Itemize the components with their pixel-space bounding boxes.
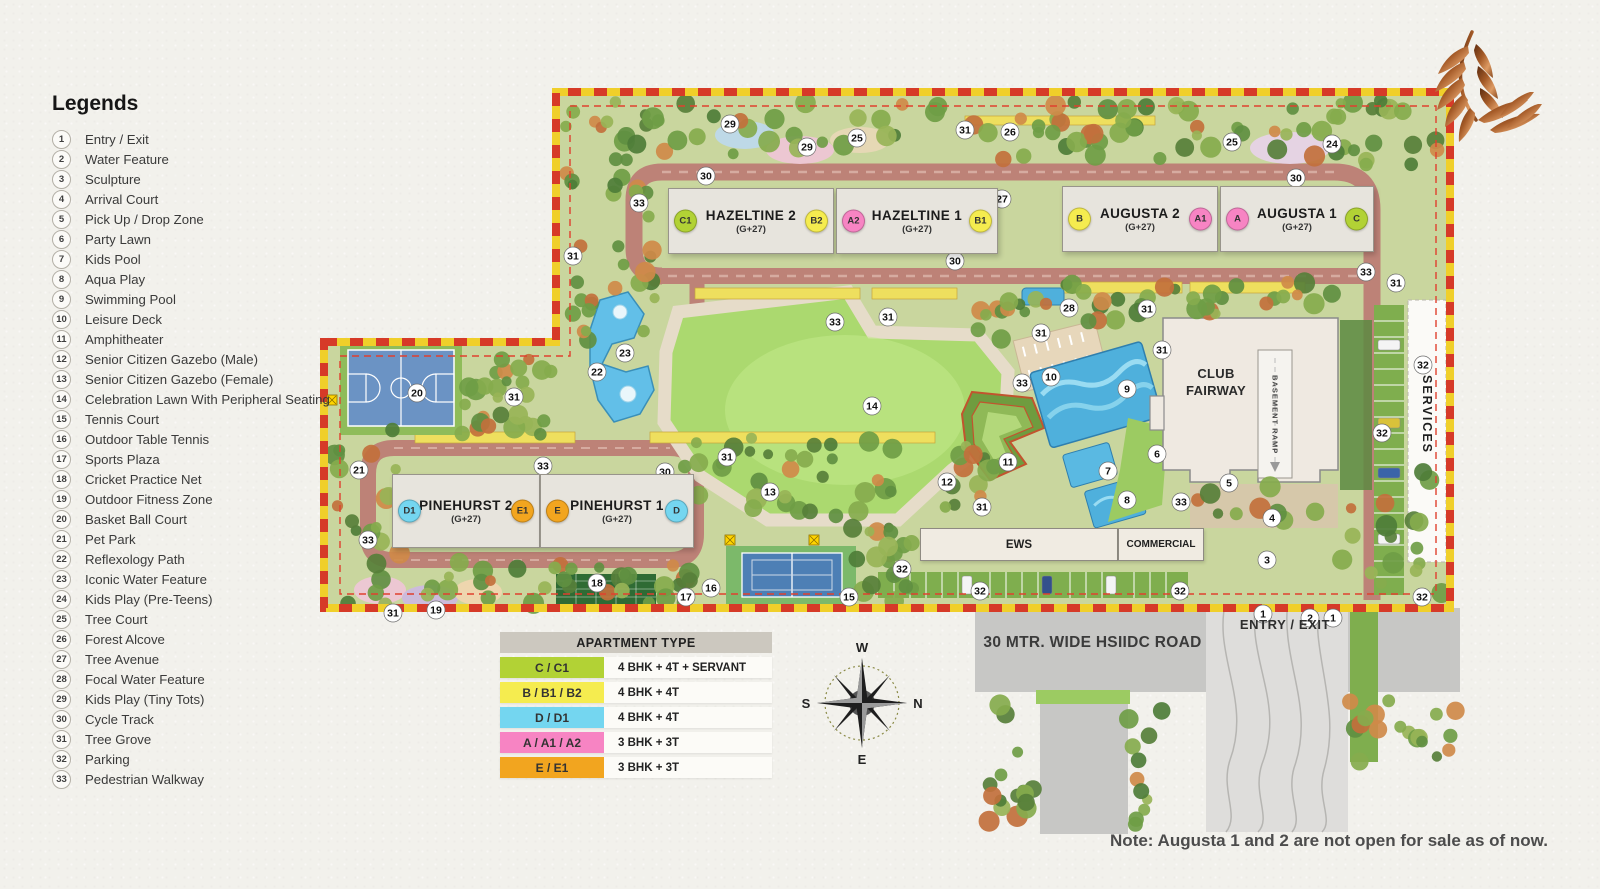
tree: [989, 694, 1010, 715]
legend-item-label: Sculpture: [85, 172, 141, 187]
tree: [971, 322, 986, 337]
legend-item-label: Kids Play (Pre-Teens): [85, 592, 213, 607]
entry-exit-label: ENTRY / EXIT: [1220, 617, 1350, 632]
legend-item-label: Leisure Deck: [85, 312, 162, 327]
tree: [568, 180, 578, 190]
tree: [876, 126, 897, 147]
tree: [1348, 144, 1360, 156]
legend-item: 28 Focal Water Feature: [52, 669, 382, 689]
map-marker-number: 31: [1156, 345, 1168, 357]
tree: [582, 303, 596, 317]
legend-item: 25 Tree Court: [52, 609, 382, 629]
map-marker-number: 22: [591, 367, 603, 379]
apartment-type-row: E / E1 3 BHK + 3T: [500, 757, 772, 778]
tree: [746, 433, 757, 444]
tree: [1382, 552, 1404, 574]
legend-title: Legends: [52, 92, 382, 116]
legend-item-number: 8: [52, 270, 71, 289]
tree: [508, 560, 526, 578]
tree: [797, 451, 814, 468]
tree: [1351, 753, 1369, 771]
apartment-type-row: A / A1 / A2 3 BHK + 3T: [500, 732, 772, 753]
map-marker-number: 31: [721, 452, 733, 464]
map-marker-number: 23: [619, 348, 631, 360]
tree: [627, 135, 646, 154]
tree: [925, 102, 945, 122]
tree: [995, 769, 1008, 782]
tree: [1040, 298, 1052, 310]
tower-hazeltine-2: C1 HAZELTINE 2 (G+27) B2: [668, 188, 834, 254]
map-marker-number: 31: [976, 502, 988, 514]
legend-item: 18 Cricket Practice Net: [52, 469, 382, 489]
apartment-table-header: APARTMENT TYPE: [500, 632, 772, 653]
tree: [612, 240, 624, 252]
legend-item-number: 26: [52, 630, 71, 649]
legend-item-number: 2: [52, 150, 71, 169]
tree: [534, 428, 547, 441]
legend-item: 22 Reflexology Path: [52, 549, 382, 569]
tree: [459, 399, 471, 411]
legend-item: 12 Senior Citizen Gazebo (Male): [52, 349, 382, 369]
tree: [1066, 132, 1087, 153]
legend-item-label: Pedestrian Walkway: [85, 772, 204, 787]
tree: [1018, 794, 1035, 811]
legend-item-label: Tree Avenue: [85, 652, 159, 667]
map-marker-number: 32: [1376, 428, 1388, 440]
tree: [1416, 736, 1428, 748]
legend-item-label: Tree Grove: [85, 732, 151, 747]
tree: [764, 109, 784, 129]
map-marker-number: 31: [508, 392, 520, 404]
tree: [940, 501, 951, 512]
tree: [983, 787, 1001, 805]
tree: [1125, 738, 1141, 754]
tree: [1430, 143, 1444, 157]
tree: [476, 377, 493, 394]
tree: [1303, 293, 1324, 314]
legend-item-label: Entry / Exit: [85, 132, 149, 147]
tree: [607, 178, 622, 193]
apartment-type-row: B / B1 / B2 4 BHK + 4T: [500, 682, 772, 703]
tree: [1306, 503, 1324, 521]
tree: [676, 94, 695, 113]
map-marker-number: 24: [1326, 139, 1338, 151]
tree: [1346, 503, 1356, 513]
tree: [1260, 476, 1281, 497]
tree: [1016, 148, 1031, 163]
apartment-type-desc: 4 BHK + 4T: [604, 682, 772, 703]
tree: [510, 360, 527, 377]
tree: [1292, 290, 1303, 301]
legend-item: 5 Pick Up / Drop Zone: [52, 209, 382, 229]
map-marker-number: 18: [591, 578, 603, 590]
tree: [824, 438, 838, 452]
tree: [682, 572, 698, 588]
legend-item-label: Senior Citizen Gazebo (Female): [85, 372, 273, 387]
map-marker-number: 30: [1290, 173, 1302, 185]
tree: [1446, 702, 1464, 720]
legend-item-number: 9: [52, 290, 71, 309]
tree: [1133, 783, 1149, 799]
tree: [1376, 515, 1398, 537]
tree: [980, 309, 992, 321]
tower-floors: (G+27): [1282, 222, 1312, 233]
map-marker-number: 29: [801, 142, 813, 154]
tree: [1153, 702, 1171, 720]
tree: [782, 460, 800, 478]
legend-item-label: Party Lawn: [85, 232, 151, 247]
legend-item: 19 Outdoor Fitness Zone: [52, 489, 382, 509]
compass-south-label: S: [802, 696, 811, 711]
legend-item-label: Kids Play (Tiny Tots): [85, 692, 204, 707]
commercial-block: COMMERCIAL: [1118, 528, 1204, 561]
apartment-type-code: B / B1 / B2: [500, 682, 604, 703]
tree: [744, 499, 762, 517]
legend-item-label: Pick Up / Drop Zone: [85, 212, 204, 227]
map-marker-number: 33: [1360, 267, 1372, 279]
tree: [485, 575, 496, 586]
tree: [1336, 98, 1346, 108]
legend-item-label: Swimming Pool: [85, 292, 176, 307]
unit-type-badge: D: [665, 500, 688, 523]
tower-name: PINEHURST 2: [419, 498, 513, 513]
tree: [1443, 729, 1457, 743]
legend-item-number: 17: [52, 450, 71, 469]
map-marker-number: 32: [896, 564, 908, 576]
tree: [728, 148, 739, 159]
tree: [1200, 137, 1221, 158]
site-plan-page: 2929253126252427303330313033232220312133…: [0, 0, 1600, 889]
apartment-type-code: C / C1: [500, 657, 604, 678]
tree: [849, 109, 866, 126]
tree: [581, 326, 591, 336]
tree: [1093, 292, 1111, 310]
legend-item: 15 Tennis Court: [52, 409, 382, 429]
tree: [493, 392, 503, 402]
tree: [1410, 564, 1423, 577]
tree: [899, 579, 913, 593]
tower-floors: (G+27): [736, 224, 766, 235]
map-marker-number: 31: [1035, 328, 1047, 340]
tree: [1171, 101, 1183, 113]
tree: [778, 490, 791, 503]
tree: [883, 439, 903, 459]
tree: [978, 123, 997, 142]
tree: [1138, 98, 1155, 115]
tennis-court: [726, 546, 856, 604]
legend-item-label: Water Feature: [85, 152, 169, 167]
tree: [459, 377, 478, 396]
tree: [849, 551, 866, 568]
tree: [1304, 145, 1325, 166]
legend-item-label: Forest Alcove: [85, 632, 165, 647]
legend-item-label: Parking: [85, 752, 130, 767]
tree: [1153, 152, 1166, 165]
tree: [481, 418, 496, 433]
legend-item-number: 21: [52, 530, 71, 549]
map-marker-number: 19: [430, 605, 442, 617]
map-marker-number: 25: [851, 133, 863, 145]
map-marker-number: 32: [1174, 586, 1186, 598]
tree: [537, 414, 550, 427]
map-marker-number: 15: [843, 592, 855, 604]
map-marker-number: 33: [633, 198, 645, 210]
tree: [689, 453, 708, 472]
compass-rose: W E S N: [802, 640, 923, 767]
map-marker-number: 33: [829, 317, 841, 329]
tree: [1430, 708, 1443, 721]
legend-item-label: Outdoor Table Tennis: [85, 432, 209, 447]
tree: [964, 445, 983, 464]
tree: [1110, 292, 1125, 307]
legend-item-number: 22: [52, 550, 71, 569]
tree: [643, 241, 662, 260]
apartment-type-code: E / E1: [500, 757, 604, 778]
tree: [635, 262, 656, 283]
apartment-type-desc: 3 BHK + 3T: [604, 757, 772, 778]
map-marker-number: 31: [387, 608, 399, 620]
legend-item: 14 Celebration Lawn With Peripheral Seat…: [52, 389, 382, 409]
tree: [618, 259, 630, 271]
legend-item: 11 Amphitheater: [52, 329, 382, 349]
tree: [1081, 313, 1097, 329]
tree: [827, 453, 838, 464]
tree: [1267, 139, 1287, 159]
legend-item: 3 Sculpture: [52, 169, 382, 189]
unit-type-badge: A: [1226, 208, 1249, 231]
tree: [1280, 128, 1292, 140]
apartment-type-desc: 4 BHK + 4T + SERVANT: [604, 657, 772, 678]
ews-block: EWS: [920, 528, 1118, 561]
map-marker-number: 10: [1045, 372, 1057, 384]
tree: [862, 576, 881, 595]
legend-item-number: 20: [52, 510, 71, 529]
legend-item: 1 Entry / Exit: [52, 129, 382, 149]
tree: [391, 464, 401, 474]
tree: [1084, 124, 1104, 144]
map-marker-number: 31: [1141, 304, 1153, 316]
tree: [992, 329, 1011, 348]
legend-item-label: Basket Ball Court: [85, 512, 187, 527]
tree: [1115, 112, 1131, 128]
tree: [566, 105, 580, 119]
tree: [817, 471, 829, 483]
tree: [538, 581, 552, 595]
tree: [1230, 507, 1243, 520]
legend-item-number: 5: [52, 210, 71, 229]
tree: [1394, 102, 1412, 120]
legend-item: 23 Iconic Water Feature: [52, 569, 382, 589]
tree: [450, 553, 469, 572]
legend-item: 20 Basket Ball Court: [52, 509, 382, 529]
map-marker-number: 33: [537, 461, 549, 473]
map-marker-number: 33: [1175, 497, 1187, 509]
map-marker-number: 32: [1416, 592, 1428, 604]
unit-type-badge: E1: [511, 500, 534, 523]
tree: [667, 559, 679, 571]
tree: [1375, 578, 1386, 589]
legend-item-number: 28: [52, 670, 71, 689]
legend-item: 4 Arrival Court: [52, 189, 382, 209]
club-fairway-label: CLUB FAIRWAY: [1170, 366, 1262, 400]
tree: [1410, 513, 1429, 532]
tree: [896, 98, 909, 111]
tree: [1382, 694, 1395, 707]
map-marker-number: 29: [724, 119, 736, 131]
tree: [1015, 113, 1027, 125]
tree: [1365, 566, 1378, 579]
tree: [609, 152, 623, 166]
tree: [601, 116, 614, 129]
map-marker-number: 31: [1390, 278, 1402, 290]
legend-item: 21 Pet Park: [52, 529, 382, 549]
apartment-type-desc: 3 BHK + 3T: [604, 732, 772, 753]
tree: [1330, 109, 1346, 125]
tree: [1345, 528, 1361, 544]
tower-pinehurst-2: D1 PINEHURST 2 (G+27) E1: [392, 474, 540, 548]
tree: [668, 131, 688, 151]
tree: [1192, 130, 1202, 140]
legend-item-number: 32: [52, 750, 71, 769]
legend-item-number: 24: [52, 590, 71, 609]
legend-item-number: 23: [52, 570, 71, 589]
legend-item: 7 Kids Pool: [52, 249, 382, 269]
compass-north-label: N: [913, 696, 922, 711]
map-marker-number: 8: [1124, 495, 1130, 507]
legend-item: 16 Outdoor Table Tennis: [52, 429, 382, 449]
map-marker-number: 14: [866, 401, 878, 413]
tree: [872, 474, 884, 486]
tower-augusta-1: A AUGUSTA 1 (G+27) C: [1220, 186, 1374, 252]
legend-item: 27 Tree Avenue: [52, 649, 382, 669]
tree: [745, 446, 756, 457]
legend-item-label: Cycle Track: [85, 712, 154, 727]
map-marker-number: 30: [949, 256, 961, 268]
sales-note: Note: Augusta 1 and 2 are not open for s…: [1110, 831, 1548, 851]
legend-item-label: Senior Citizen Gazebo (Male): [85, 352, 258, 367]
map-marker-number: 26: [1004, 127, 1016, 139]
tower-floors: (G+27): [451, 514, 481, 525]
unit-type-badge: B2: [805, 210, 828, 233]
tree: [508, 405, 528, 425]
tree: [848, 501, 868, 521]
tree: [707, 109, 721, 123]
map-marker-number: 3: [1264, 555, 1270, 567]
tree: [548, 562, 561, 575]
unit-type-badge: B: [1068, 208, 1091, 231]
tower-name: AUGUSTA 1: [1257, 206, 1337, 221]
legend-item-number: 4: [52, 190, 71, 209]
map-marker-number: 32: [974, 586, 986, 598]
map-marker-number: 9: [1124, 384, 1130, 396]
legend-item-number: 16: [52, 430, 71, 449]
tree: [1296, 122, 1311, 137]
map-marker-number: 12: [941, 477, 953, 489]
apartment-type-table: APARTMENT TYPE C / C1 4 BHK + 4T + SERVA…: [500, 632, 772, 778]
legend-panel: Legends 1 Entry / Exit 2 Water Feature 3…: [52, 92, 382, 789]
tower-floors: (G+27): [902, 224, 932, 235]
tree: [878, 537, 898, 557]
tree: [855, 482, 876, 503]
tree: [785, 449, 798, 462]
tree: [444, 572, 454, 582]
tree: [1213, 508, 1223, 518]
apartment-type-code: A / A1 / A2: [500, 732, 604, 753]
tree: [1198, 298, 1215, 315]
map-marker-number: 5: [1226, 478, 1232, 490]
tree: [570, 275, 584, 289]
map-marker-number: 30: [700, 171, 712, 183]
map-marker-number: 17: [680, 592, 692, 604]
tree: [691, 437, 702, 448]
services-label: SERVICES: [1409, 338, 1445, 490]
tree: [594, 562, 604, 572]
tree: [689, 128, 706, 145]
legend-item-number: 33: [52, 770, 71, 789]
tree: [758, 131, 780, 153]
unit-type-badge: A2: [842, 210, 865, 233]
apartment-type-code: D / D1: [500, 707, 604, 728]
tree: [995, 151, 1011, 167]
legend-item-label: Sports Plaza: [85, 452, 160, 467]
tree: [1404, 136, 1422, 154]
legend-item: 17 Sports Plaza: [52, 449, 382, 469]
legend-item-label: Tennis Court: [85, 412, 159, 427]
tree: [1012, 747, 1023, 758]
legend-item-number: 15: [52, 410, 71, 429]
legend-item: 33 Pedestrian Walkway: [52, 769, 382, 789]
tree: [1365, 135, 1382, 152]
tree: [1141, 727, 1158, 744]
legend-item-number: 12: [52, 350, 71, 369]
tree: [1131, 753, 1147, 769]
unit-type-badge: C: [1345, 208, 1368, 231]
legend-item-number: 6: [52, 230, 71, 249]
tree: [481, 590, 496, 605]
legend-item-label: Aqua Play: [85, 272, 145, 287]
legend-item-label: Celebration Lawn With Peripheral Seating: [85, 392, 330, 407]
legend-item-number: 11: [52, 330, 71, 349]
tower-pinehurst-1: E PINEHURST 1 (G+27) D: [540, 474, 694, 548]
tree: [763, 449, 773, 459]
tree: [817, 137, 828, 148]
legend-item: 13 Senior Citizen Gazebo (Female): [52, 369, 382, 389]
tree: [502, 376, 512, 386]
tree: [802, 504, 818, 520]
club-name-line2: FAIRWAY: [1186, 383, 1246, 398]
legend-item: 10 Leisure Deck: [52, 309, 382, 329]
tree: [1404, 158, 1418, 172]
tree: [1359, 158, 1372, 171]
legend-item-number: 29: [52, 690, 71, 709]
tree: [437, 579, 458, 600]
legend-item: 6 Party Lawn: [52, 229, 382, 249]
tree: [1045, 125, 1060, 140]
tree: [455, 426, 470, 441]
legend-item-number: 31: [52, 730, 71, 749]
map-marker-number: 31: [959, 125, 971, 137]
tree: [614, 583, 630, 599]
tree: [1000, 292, 1019, 311]
tree: [1323, 285, 1341, 303]
tree: [859, 431, 879, 451]
tree: [843, 519, 862, 538]
tree: [1186, 291, 1200, 305]
tree: [637, 325, 649, 337]
hsiidc-road-label: 30 MTR. WIDE HSIIDC ROAD: [975, 634, 1210, 652]
tower-name: HAZELTINE 2: [706, 208, 796, 223]
tree: [1376, 494, 1395, 513]
